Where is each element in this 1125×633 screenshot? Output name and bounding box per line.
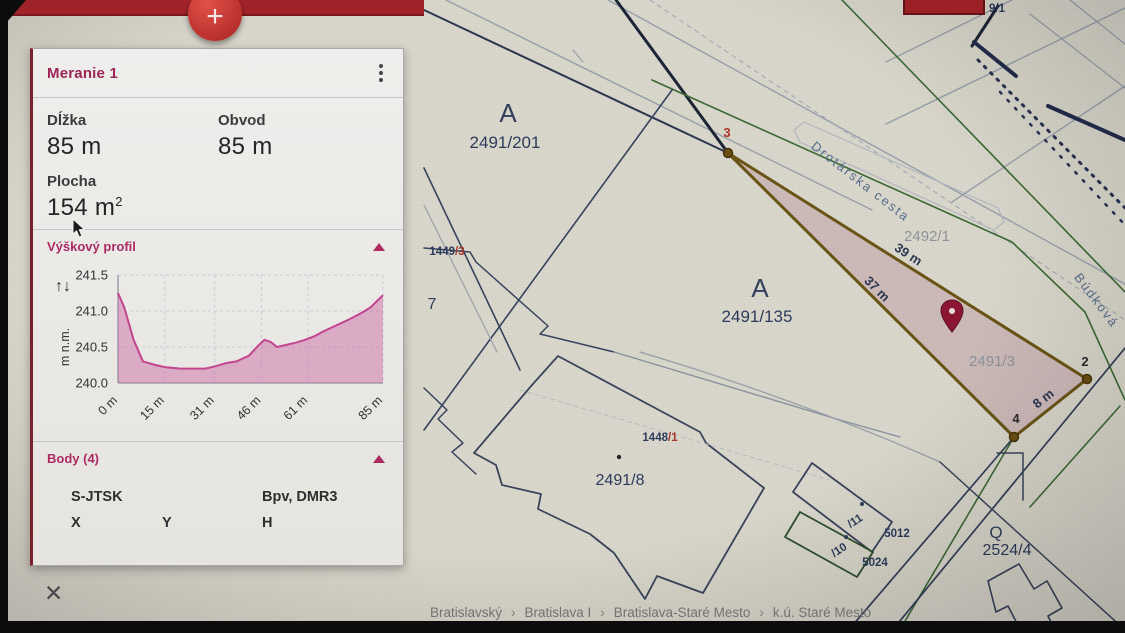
map-label: 1448/1 (642, 432, 678, 444)
map-label: 1449/3 (429, 246, 464, 258)
map-label: 5024 (862, 557, 888, 569)
svg-text:46 m: 46 m (234, 393, 264, 423)
screen-bezel-left (0, 0, 8, 633)
svg-text:240.0: 240.0 (75, 376, 108, 391)
metric-area: Plocha 154 m2 (47, 173, 233, 222)
map-label: 2491/135 (722, 307, 793, 326)
mouse-cursor (72, 219, 89, 244)
metric-perimeter: Obvod 85 m (218, 112, 389, 161)
screen-bezel-bottom (0, 621, 1125, 633)
measurement-panel: Meranie 1 Dĺžka 85 m Obvod 85 m Plocha 1… (30, 48, 404, 566)
column-h: H (262, 515, 272, 531)
map-label: Q (989, 523, 1002, 542)
svg-text:31 m: 31 m (187, 393, 217, 423)
svg-text:61 m: 61 m (281, 393, 311, 423)
profile-section-title: Výškový profil (47, 239, 136, 254)
breadcrumb-separator: › (759, 605, 764, 620)
map-label: 3 (723, 125, 730, 140)
metrics-block: Dĺžka 85 m Obvod 85 m Plocha 154 m2 (33, 98, 403, 230)
svg-text:240.5: 240.5 (75, 340, 108, 355)
column-x: X (47, 515, 162, 531)
coord-system-sjtsk: S-JTSK (47, 489, 262, 505)
panel-header: Meranie 1 (33, 49, 403, 98)
map-label: 7 (428, 296, 437, 313)
map-label: Búdková (1071, 270, 1122, 331)
chart-ylabel: m n.m. (58, 328, 72, 366)
measure-point[interactable] (1083, 375, 1092, 384)
plus-icon: + (206, 2, 224, 32)
coordinates-table: S-JTSK Bpv, DMR3 X Y H (33, 475, 403, 537)
map-label: 5012 (884, 528, 910, 540)
measure-point[interactable] (1010, 433, 1019, 442)
breadcrumb-item[interactable]: k.ú. Staré Mesto (773, 605, 871, 620)
map-label: 2492/1 (904, 228, 950, 245)
collapse-points-icon[interactable] (373, 455, 385, 463)
map-label: 4 (1012, 411, 1020, 426)
collapse-profile-icon[interactable] (373, 243, 385, 251)
points-section-title: Body (4) (47, 451, 99, 466)
map-label: 2491/8 (596, 472, 645, 489)
breadcrumb-separator: › (511, 605, 516, 620)
map-label: A (751, 273, 769, 303)
svg-text:0 m: 0 m (95, 393, 120, 418)
breadcrumb-item[interactable]: Bratislava I (525, 605, 592, 620)
kebab-menu-icon[interactable] (373, 58, 389, 88)
svg-text:241.5: 241.5 (75, 268, 108, 283)
svg-text:241.0: 241.0 (75, 304, 108, 319)
breadcrumb: Bratislavský›Bratislava I›Bratislava-Sta… (430, 605, 871, 620)
coord-system-bpv: Bpv, DMR3 (262, 489, 337, 505)
map-callout-box (903, 0, 985, 15)
measure-point[interactable] (724, 149, 733, 158)
points-section-header: Body (4) (33, 442, 403, 475)
map-label: /10 (829, 541, 849, 560)
screen-bezel-corner (0, 0, 26, 30)
updown-arrows-icon[interactable]: ↑↓ (55, 278, 71, 295)
panel-title: Meranie 1 (47, 65, 118, 82)
breadcrumb-item[interactable]: Bratislavský (430, 605, 502, 620)
close-icon[interactable]: ✕ (44, 580, 63, 607)
map-label: Drotárska cesta (808, 138, 913, 224)
metric-length: Dĺžka 85 m (47, 112, 218, 161)
breadcrumb-item[interactable]: Bratislava-Staré Mesto (614, 605, 751, 620)
map-label: 2 (1081, 354, 1088, 369)
elevation-chart: 240.0240.5241.0241.50 m15 m31 m46 m61 m8… (33, 263, 403, 441)
map-label: 2524/4 (983, 542, 1032, 559)
map-label: /11 (846, 512, 866, 531)
screen: A2491/201A2491/1352491/82492/12491/32524… (0, 0, 1125, 633)
breadcrumb-separator: › (600, 605, 605, 620)
map-label: 9/1 (989, 3, 1006, 15)
svg-text:85 m: 85 m (356, 393, 386, 423)
map-label: 2491/201 (470, 133, 541, 152)
map-label: A (499, 98, 517, 128)
column-y: Y (162, 515, 262, 531)
map-label: 2491/3 (969, 353, 1015, 370)
svg-text:15 m: 15 m (137, 393, 167, 423)
